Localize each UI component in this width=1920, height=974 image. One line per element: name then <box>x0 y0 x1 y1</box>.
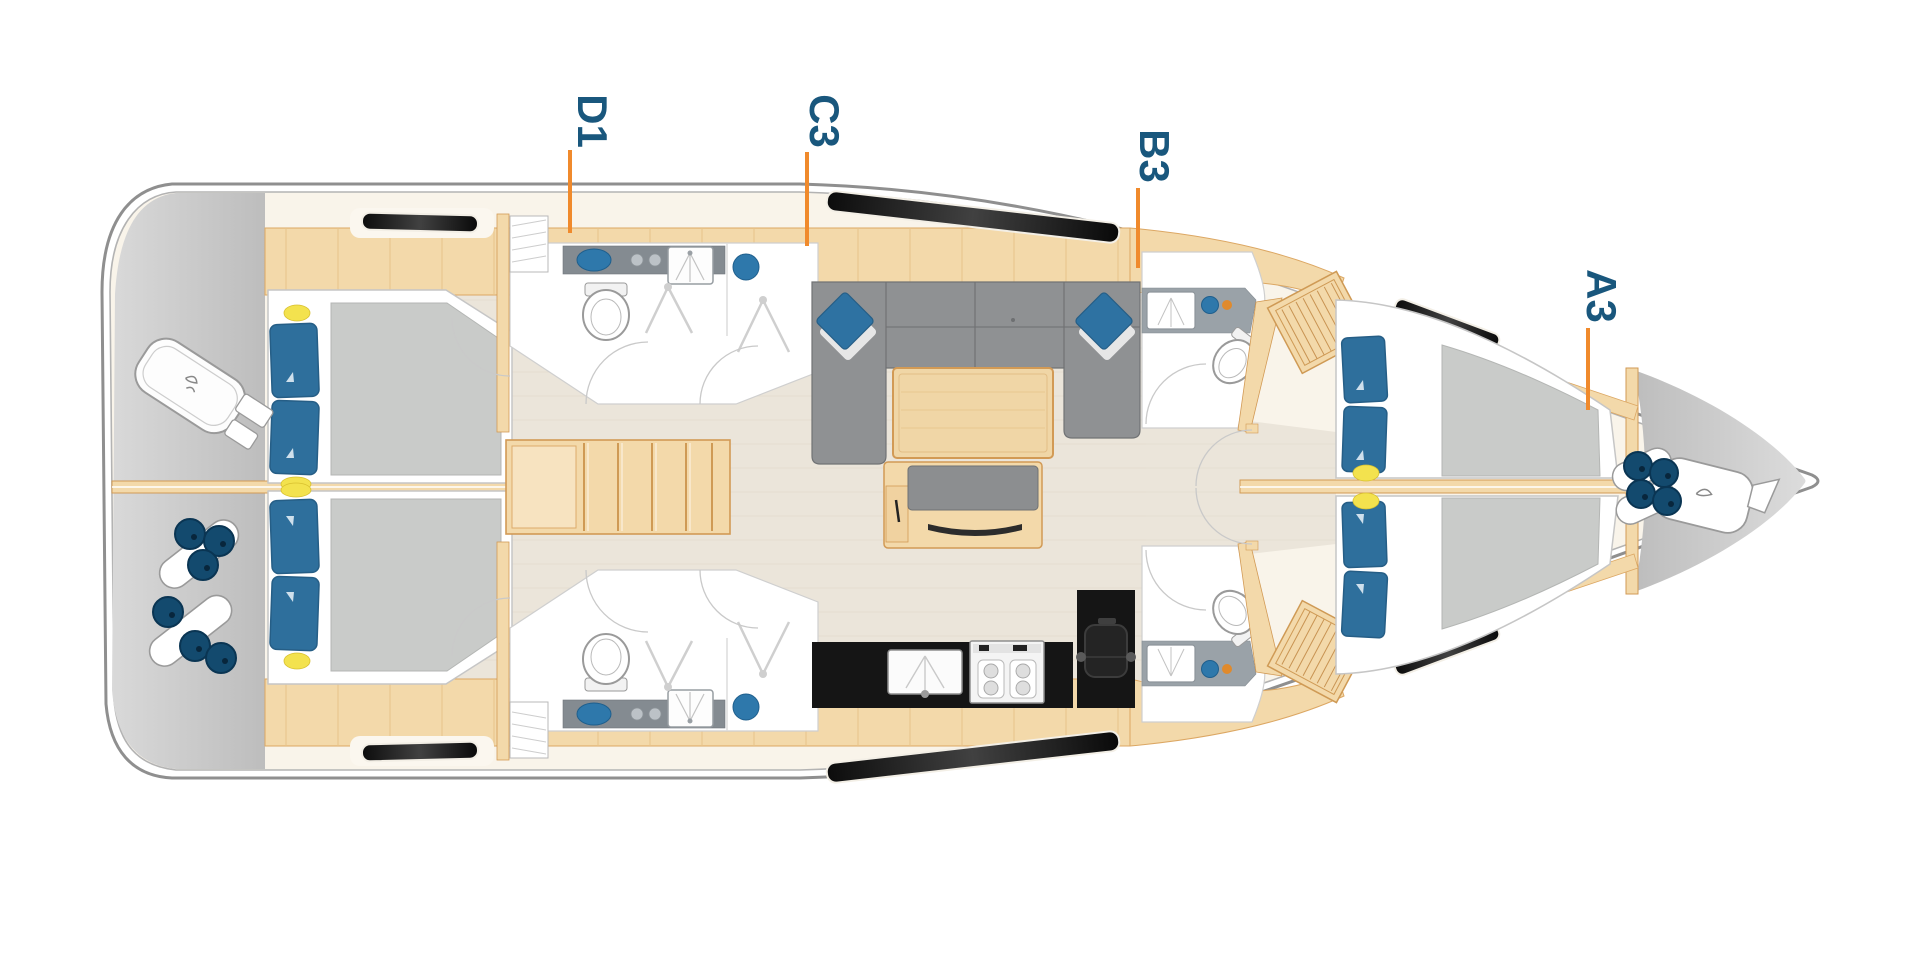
settee-cushion <box>908 466 1038 510</box>
reading-light-icon <box>284 305 310 321</box>
bed-mattress <box>331 303 501 475</box>
cabin-label-d1: D1 <box>568 94 616 148</box>
bed-pillow <box>270 400 320 475</box>
bed-pillow <box>1341 336 1387 403</box>
galley-sink-icon <box>888 650 962 698</box>
companionway-stairs <box>506 440 730 534</box>
yacht-floor-plan <box>0 0 1920 974</box>
yacht-deck-plan-canvas: D1 C3 B3 A3 <box>0 0 1920 974</box>
washbasin-icon <box>577 249 611 271</box>
louvered-cabinet <box>510 216 548 272</box>
cabin-label-b3: B3 <box>1130 129 1178 183</box>
centerline-bulkhead-fwd <box>1240 480 1634 493</box>
sink-icon <box>668 247 713 284</box>
cabin-label-c3: C3 <box>800 94 848 148</box>
aft-cabin <box>268 290 512 491</box>
door-post <box>1246 424 1258 433</box>
hull-window-aft <box>362 212 478 232</box>
partition-wall <box>497 214 509 432</box>
reading-light-icon <box>1353 465 1379 481</box>
sink-icon <box>1147 292 1195 329</box>
washbasin-icon <box>1202 297 1219 314</box>
bed-pillow <box>270 323 320 398</box>
center-settee <box>884 462 1042 548</box>
stove-icon <box>970 641 1044 703</box>
shower-basin-icon <box>733 254 759 280</box>
fitting-dot <box>1222 300 1232 310</box>
salon-table <box>893 368 1053 458</box>
bed-pillow <box>1342 406 1387 472</box>
cabin-label-a3: A3 <box>1577 269 1625 323</box>
toilet-icon <box>583 283 629 340</box>
